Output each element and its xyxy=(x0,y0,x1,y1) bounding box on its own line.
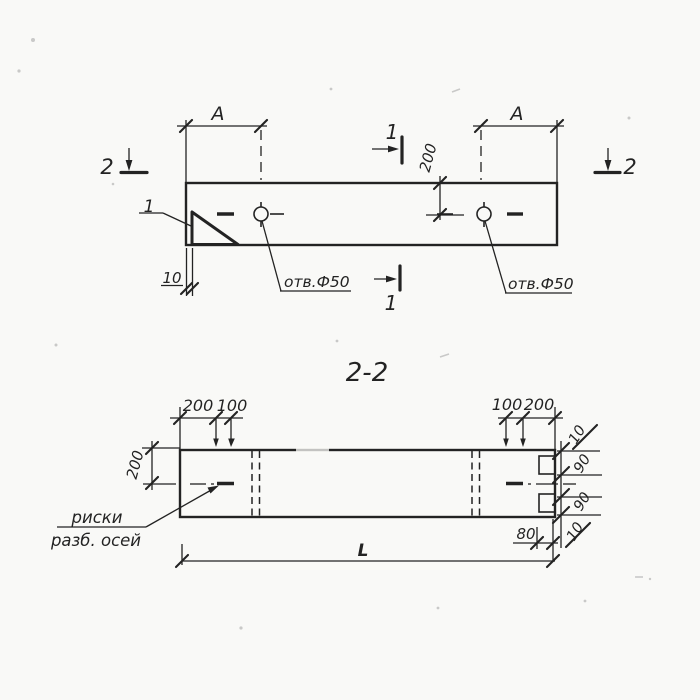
section-view: 2-2 xyxy=(50,358,602,567)
dim-200-plan: 200 xyxy=(416,142,464,221)
hole-note-right: отв.Ф50 xyxy=(485,221,574,293)
speck xyxy=(440,354,449,357)
arrowhead xyxy=(503,439,509,448)
arrowhead xyxy=(228,439,235,448)
dim-text: 90 xyxy=(571,490,594,514)
dim-length: L xyxy=(176,541,559,567)
speck xyxy=(628,117,631,120)
dim-text: A xyxy=(210,103,225,125)
right-chain-dims: 10 90 90 10 xyxy=(553,423,602,548)
arrowhead xyxy=(213,439,219,448)
section-mark-label: 2 xyxy=(623,155,636,179)
dim-10: 10 xyxy=(161,248,198,296)
dim-text: L xyxy=(358,541,369,561)
speck xyxy=(649,578,651,580)
section-outline xyxy=(180,450,555,517)
dim-80: 80 xyxy=(513,519,559,562)
speck xyxy=(17,69,20,72)
plan-outline xyxy=(186,183,557,245)
hole-note-text: отв.Ф50 xyxy=(284,273,350,291)
section-mark-label: 1 xyxy=(386,120,399,144)
plan-view: 1 A xyxy=(100,103,636,315)
speck xyxy=(584,600,587,603)
dim-text: 100 xyxy=(492,395,523,414)
dims-top-left: 200 100 xyxy=(170,396,247,449)
dim-text: 200 xyxy=(183,396,214,415)
axis-centerline xyxy=(143,484,576,485)
hole-note-text: отв.Ф50 xyxy=(508,275,574,293)
speck xyxy=(31,38,35,42)
arrowhead xyxy=(208,486,220,494)
speck xyxy=(239,626,242,629)
leader-line xyxy=(485,221,506,293)
dim-text: 200 xyxy=(123,449,148,481)
section-mark-label: 2 xyxy=(100,155,113,179)
section-mark-1-top: 1 xyxy=(372,120,402,163)
section-mark-2-right: 2 xyxy=(595,148,637,179)
note-text: разб. осей xyxy=(50,531,141,550)
dim-text: 200 xyxy=(524,395,555,414)
corner-gusset-triangle xyxy=(192,212,238,245)
scan-fade xyxy=(296,446,329,454)
speck xyxy=(55,344,58,347)
arrowhead xyxy=(605,160,612,171)
dim-height-left: 200 xyxy=(123,441,180,490)
dim-text: A xyxy=(509,103,524,125)
speck xyxy=(437,607,440,610)
dim-text: 90 xyxy=(571,452,594,476)
dim-text: 200 xyxy=(416,142,441,174)
detail-mark: 1 xyxy=(139,197,191,226)
detail-mark-label: 1 xyxy=(144,197,155,217)
plan-body xyxy=(186,183,557,245)
hole-circle xyxy=(477,207,491,221)
dim-text: 10 xyxy=(564,520,587,544)
dim-text: 10 xyxy=(162,269,181,287)
dims-top-right: 100 200 xyxy=(492,395,563,449)
drawing-sheet: 1 A xyxy=(0,0,700,700)
dim-text: 100 xyxy=(217,396,248,415)
hole-left xyxy=(217,202,284,227)
note-text: риски xyxy=(71,508,123,527)
hole-circle xyxy=(254,207,268,221)
hole-note-left: отв.Ф50 xyxy=(262,221,351,291)
dim-a-left: A xyxy=(177,103,267,182)
section-mark-1-bottom: 1 xyxy=(374,266,400,315)
section-mark-2-left: 2 xyxy=(100,148,147,179)
arrowhead xyxy=(388,146,399,153)
arrowhead xyxy=(520,439,526,448)
leader-line xyxy=(262,221,281,291)
speck xyxy=(112,183,115,186)
technical-drawing: 1 A xyxy=(0,0,700,700)
section-mark-label: 1 xyxy=(385,291,398,315)
dim-a-right: A xyxy=(473,103,564,182)
notch-bottom xyxy=(539,494,555,512)
speck xyxy=(336,340,339,343)
arrowhead xyxy=(386,276,397,283)
speck xyxy=(330,88,333,91)
section-body xyxy=(180,446,555,517)
arrowhead xyxy=(126,160,133,171)
speck xyxy=(452,89,460,92)
dim-text: 80 xyxy=(516,525,535,543)
section-title: 2-2 xyxy=(346,358,388,388)
